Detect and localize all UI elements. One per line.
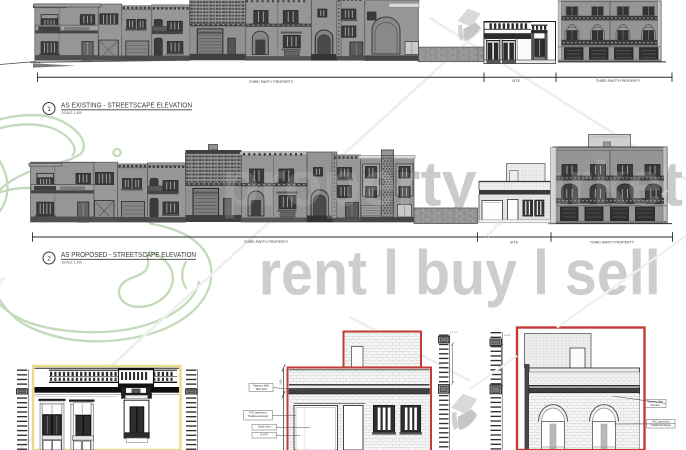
svg-text:+2.9m: +2.9m (504, 333, 511, 337)
svg-text:AS EXISTING - STREETSCAPE ELEV: AS EXISTING - STREETSCAPE ELEVATION (61, 101, 192, 110)
svg-text:SCALE 1:100: SCALE 1:100 (62, 111, 83, 115)
svg-text:3.85: 3.85 (279, 379, 283, 385)
svg-text:R.W.P.: R.W.P. (260, 433, 268, 437)
svg-text:rent l buy l sell: rent l buy l sell (259, 239, 661, 309)
svg-text:Traditional design: Traditional design (248, 414, 269, 418)
svg-text:2: 2 (47, 256, 51, 263)
svg-text:THIRD PARTY PROPERTY: THIRD PARTY PROPERTY (596, 79, 641, 83)
svg-text:THIRD PARTY PROPERTY: THIRD PARTY PROPERTY (249, 80, 294, 84)
svg-text:Gutter Vent: Gutter Vent (258, 425, 271, 429)
svg-text:AS PROPOSED - STREETSCAPE ELEV: AS PROPOSED - STREETSCAPE ELEVATION (61, 250, 196, 259)
svg-text:1: 1 (47, 106, 51, 113)
svg-text:Tiled S/W: Tiled S/W (255, 387, 267, 391)
svg-text:SCALE 1:100: SCALE 1:100 (62, 260, 83, 264)
svg-text:Pointed: Pointed (651, 403, 660, 407)
svg-text:+2.7m: +2.7m (450, 330, 457, 334)
svg-text:SITE: SITE (512, 79, 521, 83)
